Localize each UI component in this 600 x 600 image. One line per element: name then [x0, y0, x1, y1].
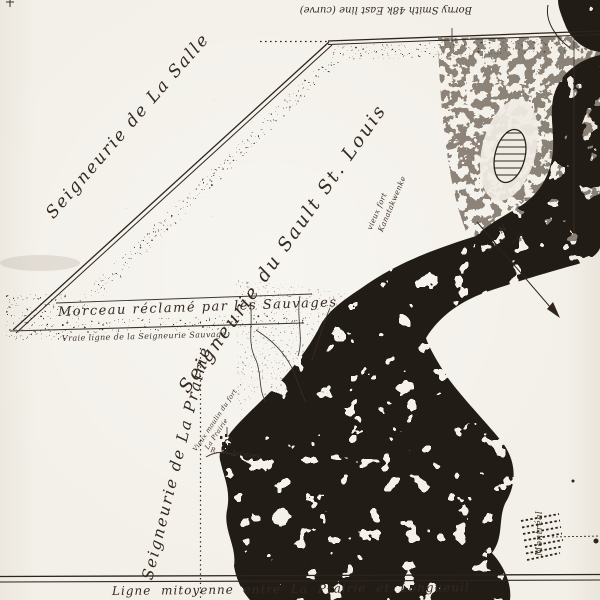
- pencil-smudge: [0, 255, 80, 271]
- survey-dot: [572, 480, 575, 483]
- survey-dot: [594, 539, 599, 544]
- corner-speckle: [6, 294, 66, 340]
- label-montreal: Montréal: [536, 511, 545, 556]
- label-ligne-mitoyenne: Ligne mitoyenne entre La Prairie et Long…: [112, 581, 470, 597]
- label-top-note: Borny Smith 48k East line (curve): [316, 4, 472, 14]
- map-canvas: Borny Smith 48k East line (curve) Seigne…: [0, 0, 600, 600]
